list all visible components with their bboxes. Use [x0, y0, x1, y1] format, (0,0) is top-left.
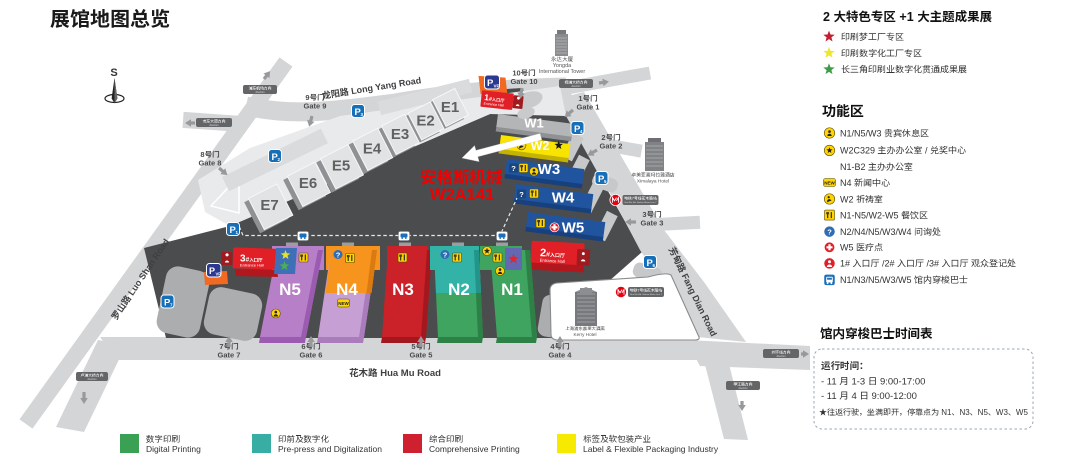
svg-text:Comprehensive Printing: Comprehensive Printing	[429, 444, 520, 454]
svg-text:E7: E7	[260, 197, 278, 214]
svg-text:Gate 2: Gate 2	[600, 142, 623, 151]
svg-text:Ximalaya Hotel: Ximalaya Hotel	[637, 179, 669, 185]
svg-text:W5: W5	[562, 220, 585, 237]
svg-text:Gate 7: Gate 7	[218, 351, 241, 360]
svg-text:永达大厦: 永达大厦	[550, 56, 574, 63]
svg-text:★往返行驶，坐满即开，停靠点为 N1、N3、N5、W3、W5: ★往返行驶，坐满即开，停靠点为 N1、N3、N5、W3、W5	[819, 408, 1028, 417]
svg-text:1# 入口厅 /2# 入口厅 /3# 入口厅 观众登记处: 1# 入口厅 /2# 入口厅 /3# 入口厅 观众登记处	[840, 258, 1016, 269]
svg-text:N5: N5	[279, 280, 301, 299]
svg-text:龙东大道方向: 龙东大道方向	[203, 119, 226, 124]
svg-text:- 11 月 4 日 9:00-12:00: - 11 月 4 日 9:00-12:00	[821, 391, 917, 402]
svg-text:W5 医疗点: W5 医疗点	[840, 243, 883, 253]
svg-text:N3: N3	[392, 280, 414, 299]
svg-text:- 11 月 1-3 日 9:00-17:00: - 11 月 1-3 日 9:00-17:00	[821, 377, 925, 388]
svg-text:N2/N4/N5/W3/W4 问询处: N2/N4/N5/W3/W4 问询处	[840, 226, 941, 237]
svg-text:Entrance Hall: Entrance Hall	[240, 263, 264, 268]
svg-text:NEW: NEW	[338, 301, 349, 306]
svg-text:Label & Flexible Packaging Ind: Label & Flexible Packaging Industry	[583, 444, 719, 454]
svg-text:Gate 8: Gate 8	[199, 159, 222, 168]
svg-text:N4: N4	[336, 280, 358, 299]
svg-text:Gate 3: Gate 3	[641, 219, 664, 228]
svg-text:W2 祈祷室: W2 祈祷室	[840, 193, 883, 204]
svg-text:N1-B2 主办办公室: N1-B2 主办办公室	[840, 161, 913, 172]
svg-text:NEW: NEW	[824, 181, 835, 186]
svg-text:N2: N2	[448, 280, 470, 299]
svg-text:Hua Mu Rd. Station Metro Line: Hua Mu Rd. Station Metro Line 7	[625, 201, 658, 204]
svg-text:Gate 6: Gate 6	[300, 351, 323, 360]
svg-text:综合印刷: 综合印刷	[429, 434, 463, 444]
svg-text:S: S	[110, 67, 117, 79]
svg-text:?: ?	[511, 164, 516, 173]
svg-text:VP: VP	[216, 272, 222, 277]
svg-text:Gate 4: Gate 4	[549, 351, 573, 360]
svg-text:浦东机场方向: 浦东机场方向	[249, 86, 272, 91]
svg-text:direction: direction	[255, 91, 265, 94]
svg-text:花木路 Hua Mu Road: 花木路 Hua Mu Road	[349, 367, 441, 379]
svg-text:W3: W3	[538, 161, 561, 178]
svg-text:Gate 9: Gate 9	[304, 102, 327, 111]
svg-text:卢浦大桥方向: 卢浦大桥方向	[80, 373, 104, 378]
svg-text:International Tower: International Tower	[539, 69, 586, 75]
svg-text:?: ?	[336, 250, 341, 259]
svg-text:direction: direction	[87, 378, 97, 381]
svg-text:地铁7号线花木路站: 地铁7号线花木路站	[629, 288, 663, 293]
svg-text:E2: E2	[416, 113, 434, 130]
svg-text:E1: E1	[441, 99, 459, 116]
svg-text:E3: E3	[391, 126, 409, 143]
svg-text:Gate 1: Gate 1	[577, 103, 600, 112]
svg-text:上海浦东嘉里大酒店: 上海浦东嘉里大酒店	[565, 325, 605, 331]
svg-text:长三角印刷业数字化贯通成果展: 长三角印刷业数字化贯通成果展	[841, 64, 967, 75]
svg-text:P: P	[209, 266, 215, 276]
svg-text:标签及软包装产业: 标签及软包装产业	[583, 434, 652, 444]
svg-text:N1: N1	[501, 280, 523, 299]
svg-text:卓美亚喜玛拉雅酒店: 卓美亚喜玛拉雅酒店	[631, 172, 674, 179]
svg-text:印前及数字化: 印前及数字化	[278, 434, 330, 444]
svg-text:印刷梦工厂专区: 印刷梦工厂专区	[841, 32, 904, 42]
svg-text:印刷数字化工厂专区: 印刷数字化工厂专区	[841, 47, 922, 58]
svg-text:W2A141: W2A141	[430, 186, 494, 204]
svg-text:?: ?	[519, 190, 524, 199]
svg-text:direction: direction	[738, 387, 748, 390]
svg-text:安格斯机械: 安格斯机械	[420, 168, 503, 187]
svg-text:功能区: 功能区	[822, 103, 864, 119]
svg-text:N1-N5/W2-W5 餐饮区: N1-N5/W2-W5 餐饮区	[840, 210, 928, 220]
svg-text:?: ?	[443, 250, 448, 259]
svg-text:W2C329 主办办公室 / 兑奖中心: W2C329 主办办公室 / 兑奖中心	[840, 145, 967, 156]
svg-text:申江路方向: 申江路方向	[734, 382, 753, 387]
svg-text:外环线方向: 外环线方向	[771, 350, 791, 355]
svg-text:地铁7号线花木路站: 地铁7号线花木路站	[623, 196, 657, 201]
svg-text:W4: W4	[552, 190, 575, 207]
svg-text:direction: direction	[776, 355, 786, 358]
svg-text:2 大特色专区 +1 大主题成果展: 2 大特色专区 +1 大主题成果展	[823, 9, 992, 24]
svg-text:Digital Printing: Digital Printing	[146, 444, 201, 454]
svg-text:Pre-press and Digitalization: Pre-press and Digitalization	[278, 444, 382, 454]
svg-text:Gate 5: Gate 5	[410, 351, 433, 360]
svg-text:?: ?	[827, 227, 832, 236]
svg-text:E4: E4	[363, 141, 382, 158]
svg-text:运行时间：: 运行时间：	[821, 360, 869, 372]
svg-text:展馆地图总览: 展馆地图总览	[50, 8, 170, 31]
svg-text:VP: VP	[494, 84, 500, 89]
svg-text:N4 新闻中心: N4 新闻中心	[840, 178, 891, 188]
svg-text:direction: direction	[571, 85, 581, 88]
svg-text:E6: E6	[299, 175, 317, 192]
svg-text:Hua Mu Rd. Station Metro Line: Hua Mu Rd. Station Metro Line 7	[630, 293, 663, 296]
svg-text:杨浦大桥方向: 杨浦大桥方向	[564, 80, 588, 85]
svg-text:数字印刷: 数字印刷	[146, 434, 180, 444]
svg-text:N1/N3/N5/W3/W5 馆内穿梭巴士: N1/N3/N5/W3/W5 馆内穿梭巴士	[840, 274, 968, 285]
svg-text:Gate 10: Gate 10	[510, 77, 537, 86]
svg-text:馆内穿梭巴士时间表: 馆内穿梭巴士时间表	[820, 326, 933, 341]
svg-text:direction: direction	[209, 124, 219, 127]
svg-text:Kerry Hotel: Kerry Hotel	[574, 332, 597, 337]
svg-text:E5: E5	[332, 158, 350, 175]
svg-text:N1/N5/W3 贵宾休息区: N1/N5/W3 贵宾休息区	[840, 127, 929, 138]
